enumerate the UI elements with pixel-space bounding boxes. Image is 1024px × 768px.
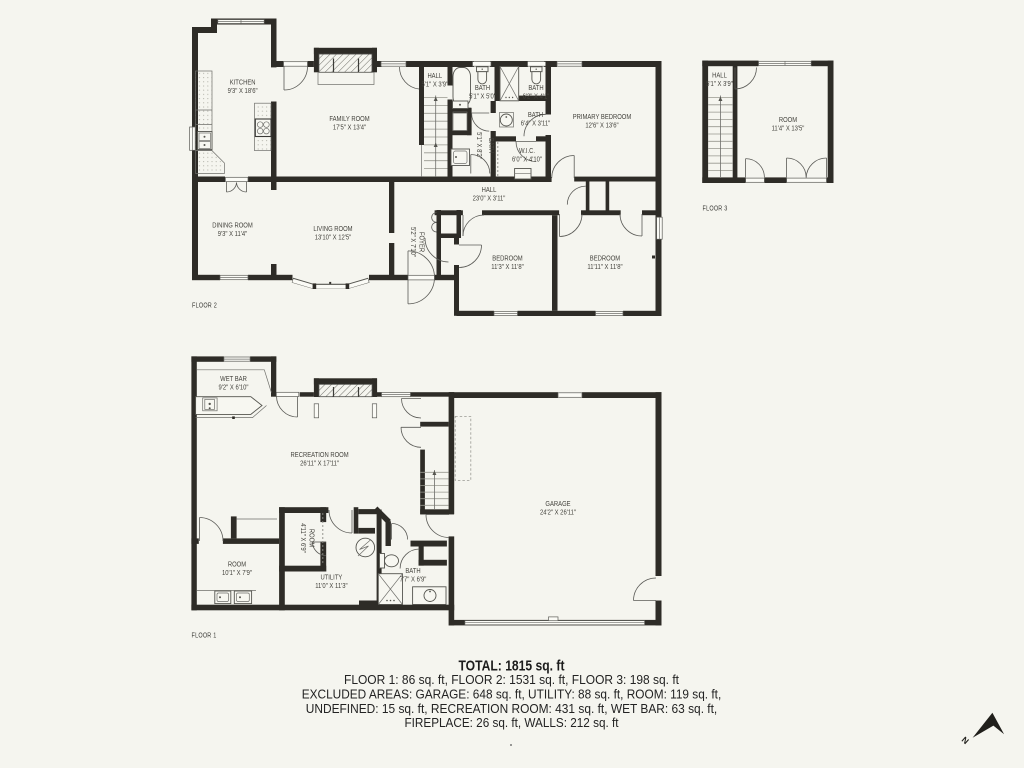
svg-text:BATH: BATH (528, 85, 543, 92)
svg-text:BEDROOM: BEDROOM (492, 256, 523, 263)
svg-text:13'10" X 12'5": 13'10" X 12'5" (315, 235, 352, 242)
svg-text:11'0" X 11'3": 11'0" X 11'3" (315, 583, 348, 590)
svg-text:ROOM: ROOM (779, 117, 797, 124)
svg-text:FLOOR 3: FLOOR 3 (703, 204, 728, 213)
svg-text:9'3" X 11'4": 9'3" X 11'4" (218, 231, 248, 238)
svg-text:11'11" X 11'8": 11'11" X 11'8" (587, 264, 623, 271)
svg-text:ROOM: ROOM (308, 529, 315, 547)
svg-text:5'1" X 8'2": 5'1" X 8'2" (475, 132, 482, 159)
svg-text:6'0" X 4'10": 6'0" X 4'10" (512, 157, 542, 164)
svg-text:11'4" X 13'5": 11'4" X 13'5" (772, 126, 805, 133)
svg-text:10'1" X 7'9": 10'1" X 7'9" (222, 570, 252, 577)
svg-text:11'3" X 11'8": 11'3" X 11'8" (491, 264, 524, 271)
svg-text:BATH: BATH (475, 85, 490, 92)
svg-text:24'2" X 26'11": 24'2" X 26'11" (540, 510, 577, 517)
svg-text:26'11" X 17'11": 26'11" X 17'11" (300, 461, 339, 468)
svg-text:DINING ROOM: DINING ROOM (212, 223, 253, 230)
svg-text:5'1" X 3'9": 5'1" X 3'9" (706, 81, 733, 88)
svg-text:7'7" X 6'9": 7'7" X 6'9" (400, 577, 427, 584)
svg-text:5'1" X 3'9": 5'1" X 3'9" (421, 82, 448, 89)
svg-text:FOYER: FOYER (418, 232, 425, 252)
svg-text:GARAGE: GARAGE (545, 501, 570, 508)
svg-text:UTILITY: UTILITY (320, 575, 342, 582)
svg-text:6'2" X 4'1": 6'2" X 4'1" (523, 94, 550, 101)
svg-text:WET BAR: WET BAR (220, 376, 247, 383)
svg-text:FLOOR 1: 86 sq. ft, FLOOR 2: 1: FLOOR 1: 86 sq. ft, FLOOR 2: 1531 sq. ft… (344, 672, 679, 687)
svg-text:UNDEFINED: 15 sq. ft, RECREATI: UNDEFINED: 15 sq. ft, RECREATION ROOM: 4… (306, 701, 718, 716)
svg-text:9'2" X 6'10": 9'2" X 6'10" (219, 385, 249, 392)
svg-text:FLOOR 1: FLOOR 1 (192, 631, 217, 640)
svg-text:BATH: BATH (528, 112, 543, 119)
svg-text:FAMILY ROOM: FAMILY ROOM (329, 116, 369, 123)
svg-text:RECREATION ROOM: RECREATION ROOM (291, 452, 349, 459)
svg-text:12'6" X 13'6": 12'6" X 13'6" (585, 123, 619, 130)
svg-text:HALL: HALL (427, 73, 442, 80)
svg-text:ROOM: ROOM (228, 562, 246, 569)
svg-text:W.I.C.: W.I.C. (519, 148, 535, 155)
svg-text:BATH: BATH (405, 568, 420, 575)
svg-text:KITCHEN: KITCHEN (230, 79, 256, 86)
svg-text:4'11" X 6'9": 4'11" X 6'9" (299, 523, 306, 553)
svg-text:HALL: HALL (712, 73, 727, 80)
svg-text:23'0" X 3'11": 23'0" X 3'11" (473, 196, 506, 203)
svg-text:PRIMARY BEDROOM: PRIMARY BEDROOM (573, 114, 632, 121)
svg-text:17'5" X 13'4": 17'5" X 13'4" (333, 125, 367, 132)
svg-text:FLOOR 2: FLOOR 2 (192, 301, 217, 310)
svg-text:LIVING ROOM: LIVING ROOM (313, 226, 352, 233)
svg-text:BATH: BATH (487, 138, 494, 153)
svg-text:BEDROOM: BEDROOM (590, 256, 621, 263)
svg-text:HALL: HALL (482, 187, 497, 194)
svg-text:5'1" X 5'0": 5'1" X 5'0" (469, 94, 496, 101)
svg-text:6'4" X 3'11": 6'4" X 3'11" (521, 121, 551, 128)
svg-text:EXCLUDED AREAS: GARAGE: 648 sq: EXCLUDED AREAS: GARAGE: 648 sq. ft, UTIL… (302, 686, 722, 701)
svg-text:5'2" X 7'10": 5'2" X 7'10" (409, 227, 416, 257)
svg-text:9'3" X 18'6": 9'3" X 18'6" (228, 88, 258, 95)
svg-text:FIREPLACE: 26 sq. ft, WALLS: 2: FIREPLACE: 26 sq. ft, WALLS: 212 sq. ft (405, 715, 619, 730)
